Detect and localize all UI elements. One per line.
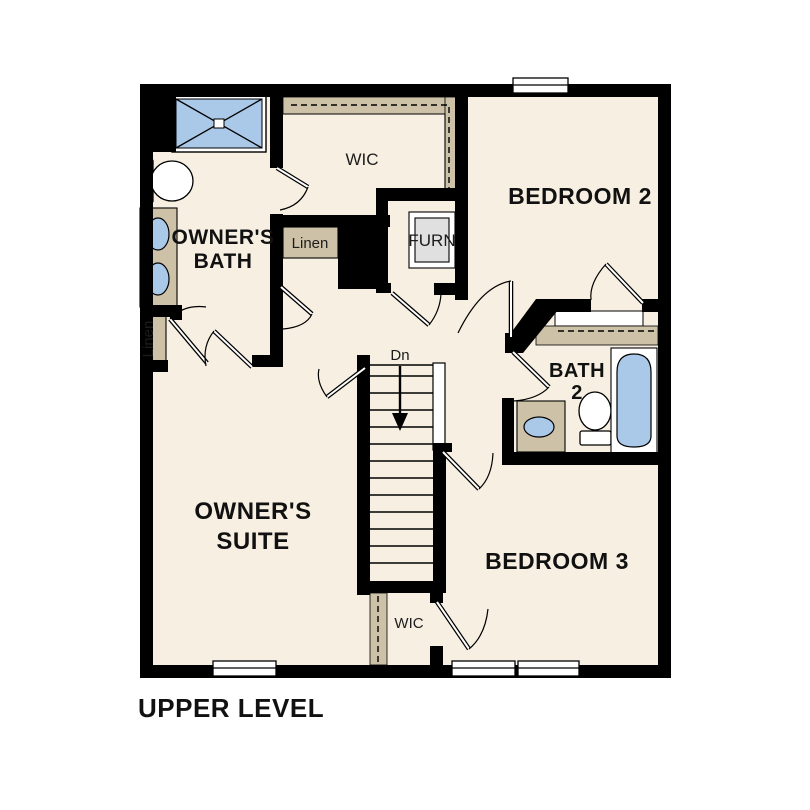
bath2-vanity (517, 401, 565, 452)
linen-hall-label: Linen (292, 235, 329, 252)
owners-bath-label: OWNER'S (172, 226, 275, 249)
wall-stub (434, 283, 455, 295)
exterior-wall-top (140, 84, 671, 97)
wall-block-top-left (140, 84, 176, 152)
wall-stairs-left (357, 355, 370, 595)
furnace-label: FURN (408, 231, 455, 250)
wall-stairs-bottom (357, 581, 446, 593)
wic-lower-label: WIC (394, 615, 423, 632)
exterior-wall-left (140, 84, 153, 678)
bath2-label: 2 (571, 382, 583, 404)
wall-suite-top (252, 355, 283, 367)
window-bedroom2-top (513, 78, 568, 93)
owners-bath-label: BATH (194, 250, 253, 273)
sink-basin (524, 417, 554, 437)
wall-stub (433, 443, 452, 452)
bedroom2-label: BEDROOM 2 (508, 183, 652, 209)
owners-suite-label: SUITE (216, 528, 289, 555)
bedroom3-label: BEDROOM 3 (485, 548, 629, 574)
wall-furnace-top (376, 188, 467, 201)
linen-owners-label: Linen (140, 321, 157, 358)
exterior-wall-right (658, 84, 671, 678)
wall-linen-bottom (140, 360, 168, 372)
shower-drain (214, 119, 224, 128)
wic-upper-label: WIC (345, 150, 378, 169)
wall-wic-lower-right (430, 646, 443, 665)
window-bedroom3-right (518, 661, 579, 676)
owners-suite-label: OWNER'S (194, 498, 311, 525)
wall-stairs-right (433, 450, 446, 581)
wic-lower-shelf (370, 593, 387, 665)
wall-bedroom2-left (455, 84, 468, 300)
shower (172, 95, 266, 152)
wall-furnace-left (376, 201, 388, 285)
level-title: UPPER LEVEL (138, 693, 324, 723)
wall-stub (376, 283, 391, 293)
wall-bath2-bottom (502, 452, 658, 465)
floor-plan-page: OWNER'S BATH WIC BEDROOM 2 FURN Linen Li… (0, 0, 810, 810)
wall-bedroom2-closet (642, 299, 658, 312)
window-owners-suite (213, 661, 276, 676)
stair-railing (433, 363, 445, 450)
wall-stub (430, 593, 443, 603)
bath2-label: BATH (549, 360, 605, 382)
stairs-down-label: Dn (390, 347, 409, 364)
bathtub (611, 348, 657, 454)
wall-bath-wic (270, 84, 283, 168)
floor-plan-drawing: OWNER'S BATH WIC BEDROOM 2 FURN Linen Li… (0, 0, 810, 810)
window-bedroom3-left (452, 661, 515, 676)
toilet-bath2 (579, 392, 611, 445)
wall-wic-bottom (283, 215, 390, 227)
wall-bath2-left (502, 398, 514, 455)
